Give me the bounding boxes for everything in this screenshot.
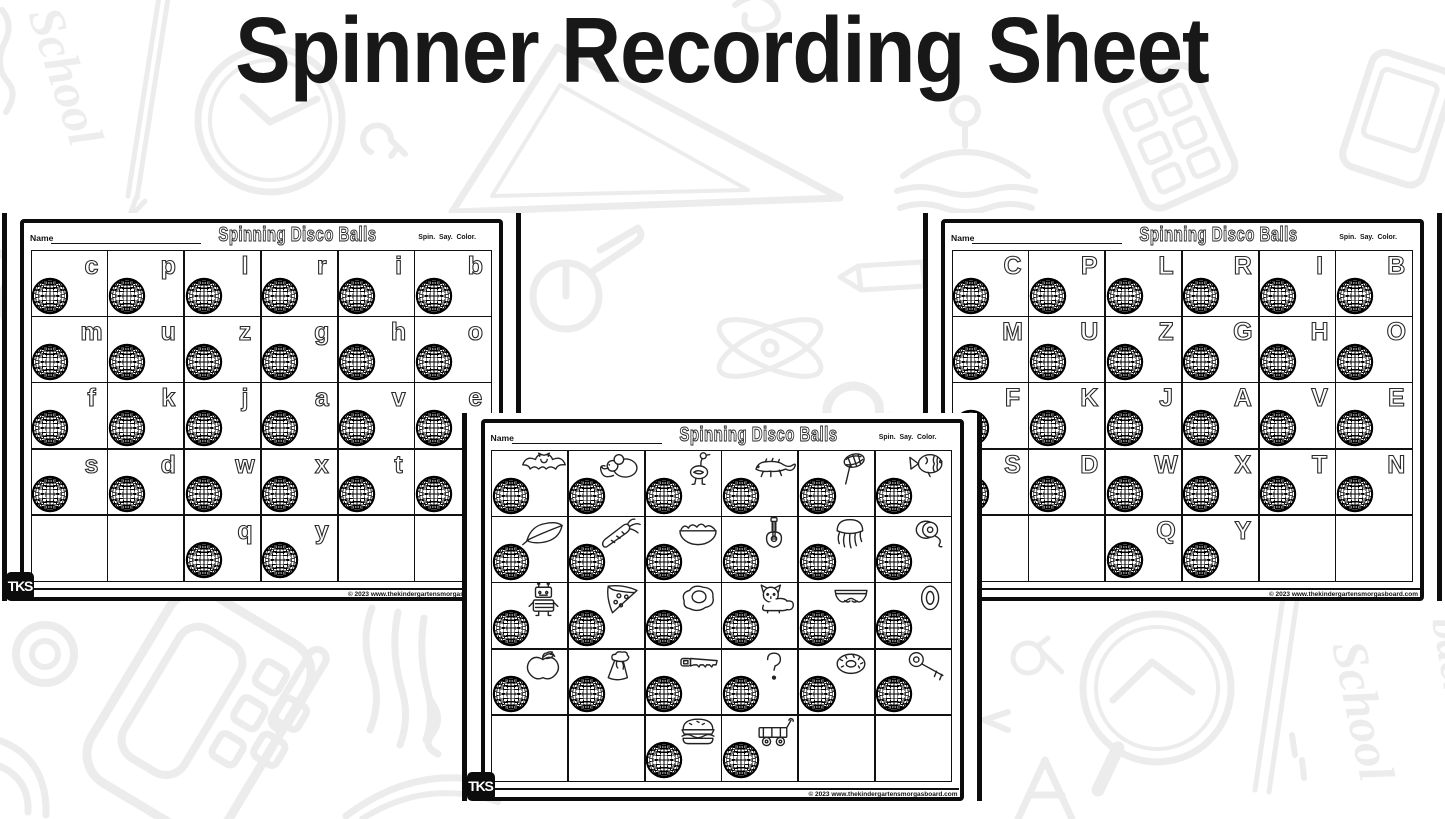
svg-text:School: School	[1321, 636, 1405, 786]
svg-text:back: back	[1422, 613, 1445, 706]
